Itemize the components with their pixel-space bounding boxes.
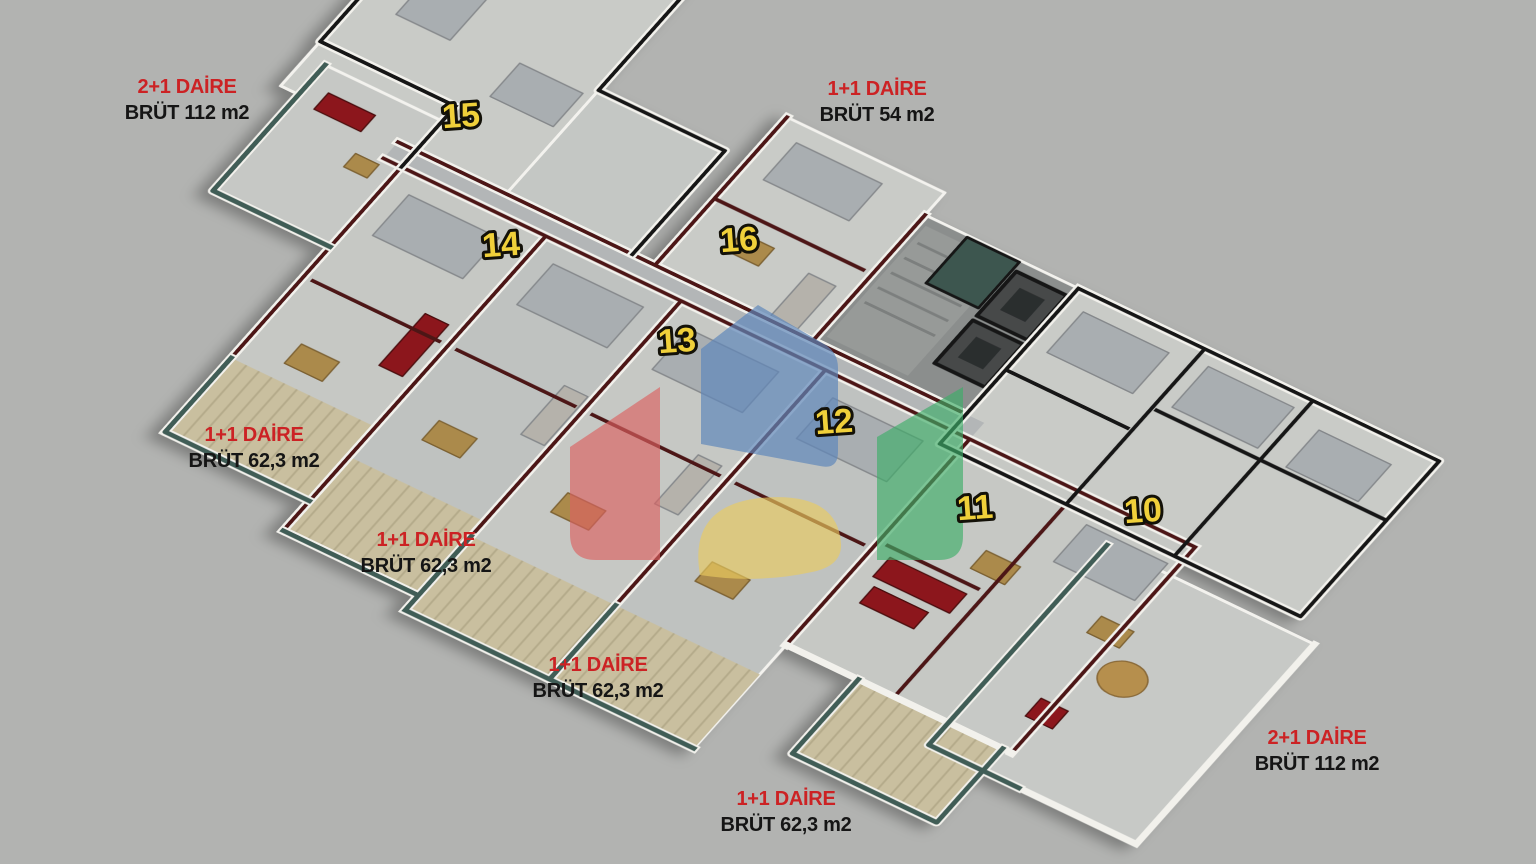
floorplan-scene: 10111213141516 2+1 DAİREBRÜT 112 m21+1 D… — [0, 0, 1536, 864]
unit-number-12: 12 — [814, 402, 854, 443]
apartment-area: BRÜT 112 m2 — [125, 100, 250, 126]
unit-number-15: 15 — [441, 96, 481, 137]
apartment-label-bottom-right: 2+1 DAİREBRÜT 112 m2 — [1255, 725, 1380, 777]
apartment-label-mid-left: 1+1 DAİREBRÜT 62,3 m2 — [361, 527, 492, 579]
apartment-label-top-left: 2+1 DAİREBRÜT 112 m2 — [125, 74, 250, 126]
apartment-type: 1+1 DAİRE — [361, 527, 492, 553]
unit-number-16: 16 — [719, 220, 759, 261]
apartment-area: BRÜT 62,3 m2 — [361, 553, 492, 579]
apartment-type: 1+1 DAİRE — [189, 422, 320, 448]
apartment-type: 2+1 DAİRE — [1255, 725, 1380, 751]
apartment-area: BRÜT 54 m2 — [820, 102, 935, 128]
apartment-type: 2+1 DAİRE — [125, 74, 250, 100]
apartment-label-mid-bottom: 1+1 DAİREBRÜT 62,3 m2 — [533, 652, 664, 704]
apartment-label-left: 1+1 DAİREBRÜT 62,3 m2 — [189, 422, 320, 474]
apartment-label-bottom: 1+1 DAİREBRÜT 62,3 m2 — [721, 786, 852, 838]
unit-number-14: 14 — [481, 225, 521, 266]
apartment-area: BRÜT 62,3 m2 — [721, 812, 852, 838]
apartment-type: 1+1 DAİRE — [820, 76, 935, 102]
apartment-type: 1+1 DAİRE — [533, 652, 664, 678]
apartment-area: BRÜT 62,3 m2 — [189, 448, 320, 474]
unit-number-10: 10 — [1123, 491, 1163, 532]
unit-number-13: 13 — [657, 321, 697, 362]
apartment-label-top-right: 1+1 DAİREBRÜT 54 m2 — [820, 76, 935, 128]
apartment-area: BRÜT 62,3 m2 — [533, 678, 664, 704]
unit-number-11: 11 — [956, 488, 995, 528]
apartment-type: 1+1 DAİRE — [721, 786, 852, 812]
apartment-area: BRÜT 112 m2 — [1255, 751, 1380, 777]
